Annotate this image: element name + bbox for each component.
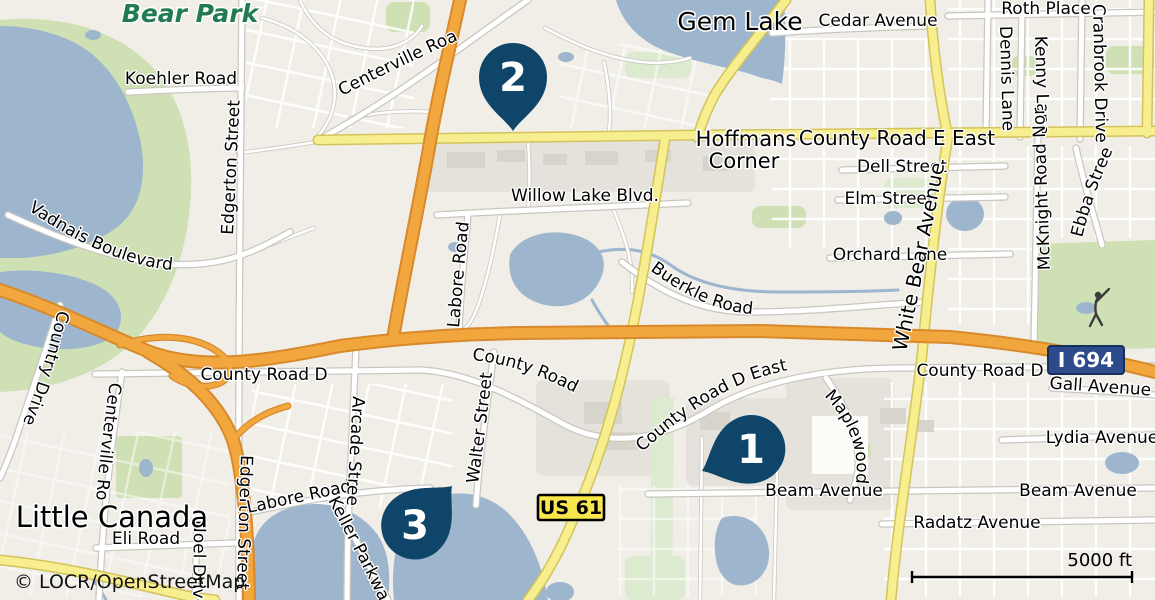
label-radatz-avenue: Radatz Avenue xyxy=(913,513,1040,533)
shield-i694-text: I 694 xyxy=(1058,348,1114,372)
map-attribution: © LOCR/OpenStreetMap xyxy=(14,571,245,593)
label-county-road-d-west: County Road D xyxy=(200,365,327,385)
shield-i694: I 694 xyxy=(1048,346,1124,374)
label-beam-avenue-east: Beam Avenue xyxy=(1019,481,1137,501)
shield-us61-text: US 61 xyxy=(540,497,602,519)
label-lydia-avenue: Lydia Avenue xyxy=(1046,428,1155,448)
map-viewport[interactable]: Koehler Road Edgerton Street Centerville… xyxy=(0,0,1155,600)
label-hoffmans-corner-line2: Corner xyxy=(709,149,780,173)
label-bear-park: Bear Park xyxy=(122,0,260,28)
marker-1-number: 1 xyxy=(737,427,765,473)
label-cedar-avenue: Cedar Avenue xyxy=(818,11,937,31)
label-dennis-lane: Dennis Lane xyxy=(995,26,1018,132)
label-koehler-road: Koehler Road xyxy=(125,69,237,89)
label-gem-lake: Gem Lake xyxy=(677,7,802,36)
label-beam-avenue-west: Beam Avenue xyxy=(765,481,883,501)
label-little-canada: Little Canada xyxy=(16,500,208,534)
label-cranbrook-drive: Cranbrook Drive xyxy=(1088,4,1111,143)
label-hoffmans-corner-line1: Hoffmans xyxy=(696,127,797,151)
label-willow-lake-blvd: Willow Lake Blvd. xyxy=(511,186,659,206)
marker-2-number: 2 xyxy=(499,55,527,101)
map-canvas[interactable]: Koehler Road Edgerton Street Centerville… xyxy=(0,0,1155,600)
marker-3-number: 3 xyxy=(401,503,429,549)
label-county-road-e-east: County Road E East xyxy=(799,126,995,150)
scale-label: 5000 ft xyxy=(1067,550,1132,571)
shield-us61: US 61 xyxy=(538,495,604,520)
label-roth-place: Roth Place xyxy=(1001,0,1091,19)
label-county-road-d-right: County Road D xyxy=(916,361,1043,381)
